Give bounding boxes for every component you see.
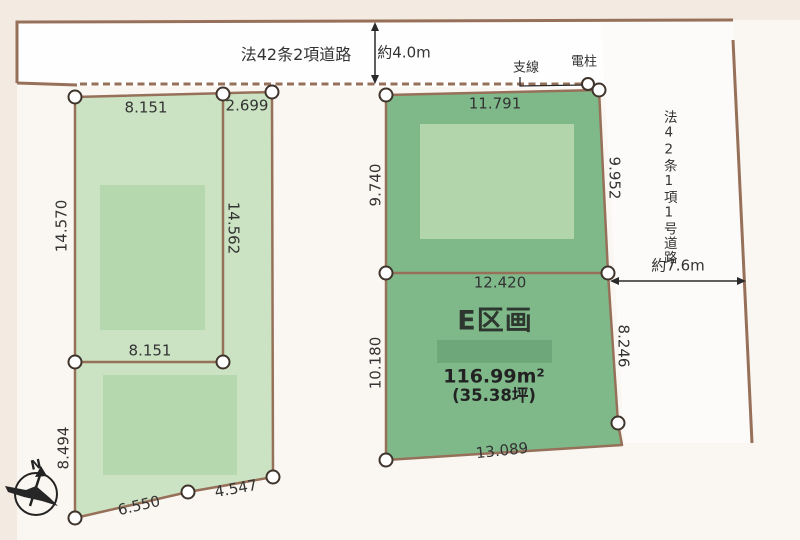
dim-left-inner-bottom: 8.151 — [129, 344, 172, 359]
utility-pole-label: 電柱 — [571, 56, 597, 69]
vertex-marker — [69, 91, 82, 104]
vertex-marker — [602, 267, 615, 280]
branch-wire-label: 支線 — [513, 62, 539, 75]
dim-left-middle: 14.562 — [226, 202, 241, 255]
dim-e-west-lower: 10.180 — [369, 337, 384, 390]
left-margin — [0, 0, 17, 540]
dim-e-top: 11.791 — [469, 97, 522, 112]
building-footprint-left-lower — [103, 375, 237, 475]
dim-left-top: 8.151 — [125, 101, 168, 116]
parcel-plan-page: N 法42条2項道路 約4.0m 支線 電柱 法42条1項1号道路 約7.6m … — [0, 0, 800, 540]
vertex-marker — [69, 356, 82, 369]
vertex-marker — [217, 356, 230, 369]
dim-e-east-upper: 9.952 — [607, 157, 622, 200]
vertex-marker — [593, 84, 606, 97]
parcel-e-area-sqm: 116.99m² — [443, 368, 544, 387]
dim-left-west-lower: 8.494 — [57, 427, 72, 470]
vertex-marker — [267, 471, 280, 484]
dim-e-middle: 12.420 — [474, 276, 527, 291]
vertex-marker — [380, 454, 393, 467]
top-road-label: 法42条2項道路 — [241, 47, 352, 63]
top-margin — [0, 0, 800, 20]
parcel-e-area-tsubo: (35.38坪) — [452, 388, 536, 405]
dim-left-west-upper: 14.570 — [55, 200, 70, 253]
dim-left-top-right: 2.699 — [226, 99, 269, 114]
vertex-marker — [380, 267, 393, 280]
parcel-e-title: E区画 — [457, 308, 532, 335]
vertex-marker — [612, 417, 625, 430]
right-road-label: 法42条1項1号道路 — [661, 110, 675, 265]
top-road-bottom-edge — [17, 83, 77, 85]
vertex-marker — [182, 486, 195, 499]
dim-e-west-upper: 9.740 — [369, 164, 384, 207]
vertex-marker — [380, 89, 393, 102]
top-road-width-label: 約4.0m — [377, 46, 430, 61]
right-road-width-label: 約7.6m — [651, 259, 704, 274]
vertex-marker — [69, 512, 82, 525]
dim-e-east-lower: 8.246 — [616, 325, 631, 368]
building-footprint-e — [420, 124, 574, 239]
redacted-band — [437, 340, 552, 363]
building-footprint-left-upper — [100, 185, 205, 330]
compass-north-label: N — [29, 457, 43, 474]
